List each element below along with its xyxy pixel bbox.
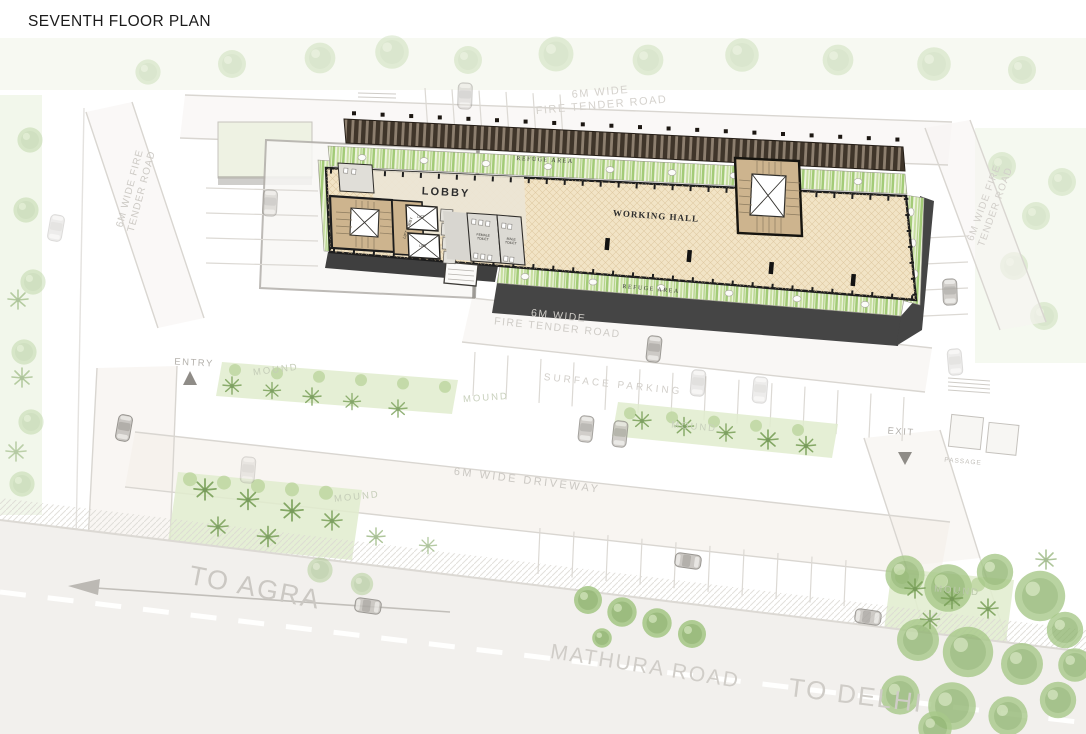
fixture	[479, 220, 483, 225]
car	[674, 552, 702, 569]
tree-cluster	[1001, 643, 1043, 685]
palm-tree	[675, 418, 694, 436]
car	[943, 279, 958, 305]
stall-line	[539, 359, 541, 403]
car	[752, 376, 768, 403]
pergola-column-dot	[724, 129, 728, 133]
faded-tree	[375, 35, 409, 69]
roadside-tree	[642, 608, 671, 637]
palm-tree	[344, 394, 361, 410]
palm-tree	[194, 479, 216, 500]
pergola-column-dot	[409, 114, 413, 118]
pergola-column-dot	[609, 124, 613, 128]
faded-tree	[351, 573, 373, 595]
fixture	[352, 169, 356, 174]
roadside-tree	[574, 586, 602, 614]
hedge	[439, 381, 451, 393]
planter-pot	[482, 161, 490, 167]
mound-strip	[216, 362, 458, 414]
faded-tree	[823, 45, 854, 76]
fixture	[488, 255, 492, 260]
car	[47, 214, 65, 242]
planter-pot	[544, 164, 552, 170]
hedge	[750, 420, 762, 432]
tree-cluster	[924, 564, 972, 612]
palm-tree	[303, 388, 321, 405]
pergola-column-dot	[895, 138, 899, 142]
palm-tree	[942, 589, 963, 609]
faded-tree	[988, 152, 1016, 180]
hedge	[355, 374, 367, 386]
faded-tree	[218, 50, 246, 78]
faded-tree	[917, 47, 951, 81]
tree-cluster	[988, 696, 1027, 734]
stall-line	[605, 366, 607, 410]
tree-cluster	[1040, 682, 1076, 718]
palm-tree	[238, 490, 259, 510]
service-room	[338, 163, 374, 193]
palm-tree	[905, 579, 925, 598]
planter-pot	[725, 290, 733, 296]
pergola-column-dot	[495, 118, 499, 122]
hedge	[397, 377, 409, 389]
faded-tree	[1008, 56, 1036, 84]
palm-tree	[758, 430, 778, 449]
hedge	[319, 486, 333, 500]
faded-tree	[725, 38, 759, 72]
car	[612, 420, 629, 447]
planter-pot	[793, 296, 801, 302]
pergola-column-dot	[838, 135, 842, 139]
car	[947, 348, 963, 375]
stall-line	[506, 355, 508, 399]
planter-pot	[854, 179, 862, 185]
palm-tree	[717, 424, 735, 441]
pergola-column-dot	[695, 128, 699, 132]
roadside-tree	[678, 620, 706, 648]
entry-arrow	[183, 371, 197, 385]
pergola-column-dot	[381, 113, 385, 117]
faded-tree	[454, 46, 482, 74]
planter-pot	[668, 170, 676, 176]
palm-tree	[1036, 550, 1056, 569]
planter-pot	[861, 301, 869, 307]
palm-tree	[978, 599, 998, 618]
hedge	[285, 482, 299, 496]
faded-tree	[9, 471, 34, 496]
pergola-column-dot	[667, 126, 671, 130]
note-smudge	[358, 93, 396, 94]
pergola-column-dot	[352, 111, 356, 115]
hedge	[666, 411, 678, 423]
hedge	[217, 476, 231, 490]
hedge	[624, 407, 636, 419]
stall-line	[572, 362, 574, 406]
palm-tree	[633, 412, 651, 429]
palm-tree	[921, 611, 940, 629]
fixture	[508, 224, 512, 229]
car	[354, 597, 382, 614]
planter-pot	[420, 158, 428, 164]
fixture	[481, 254, 485, 259]
palm-tree	[12, 368, 32, 387]
palm-tree	[389, 400, 407, 417]
roadside-tree	[607, 597, 636, 626]
note-smudge	[948, 390, 990, 393]
planter-pot	[657, 285, 665, 291]
faded-tree	[17, 127, 42, 152]
car	[458, 83, 473, 109]
faded-tree	[11, 339, 36, 364]
tree-cluster	[1047, 612, 1083, 648]
hedge	[313, 371, 325, 383]
stall-line	[776, 553, 778, 599]
planter-pot	[589, 279, 597, 285]
palm-tree	[258, 527, 279, 547]
palm-tree	[264, 383, 281, 399]
note-smudge	[948, 382, 990, 385]
fixture	[510, 257, 514, 262]
car	[854, 608, 882, 625]
note-smudge	[948, 378, 990, 381]
pergola-column-dot	[438, 115, 442, 119]
faded-tree	[18, 409, 43, 434]
fixture	[486, 221, 490, 226]
fixture	[502, 223, 506, 228]
pergola-column-dot	[581, 122, 585, 126]
faded-tree	[1022, 202, 1050, 230]
planter-pot	[358, 155, 366, 161]
palm-tree	[223, 377, 241, 394]
floor-plan-sheet: SEVENTH FLOOR PLAN 6M WIDE FIRE TENDER R…	[0, 0, 1086, 734]
pergola-column-dot	[752, 131, 756, 135]
tree-cluster	[880, 675, 919, 714]
palm-tree	[322, 511, 342, 530]
fixture	[504, 256, 508, 261]
pergola-column-dot	[638, 125, 642, 129]
pergola-column-dot	[867, 136, 871, 140]
utility-boxes	[948, 414, 1019, 455]
fixture	[474, 253, 478, 258]
building	[318, 111, 934, 346]
pergola-column-dot	[552, 121, 556, 125]
stall-line	[810, 557, 812, 603]
palm-tree	[797, 437, 816, 455]
car	[690, 369, 706, 396]
palm-tree	[8, 290, 28, 309]
hedge	[271, 367, 283, 379]
hedge	[708, 416, 720, 428]
faded-tree	[307, 557, 332, 582]
pergola-column-dot	[466, 117, 470, 121]
tree-cluster	[943, 627, 993, 677]
planter-pot	[521, 273, 529, 279]
palm-tree	[281, 500, 303, 521]
tree-cluster	[897, 619, 939, 661]
palm-tree	[420, 538, 437, 554]
planter-pot	[606, 167, 614, 173]
faded-tree	[135, 59, 160, 84]
faded-tree	[633, 45, 664, 76]
pergola-column-dot	[781, 132, 785, 136]
faded-tree	[1048, 168, 1076, 196]
palm-tree	[208, 517, 228, 536]
car	[578, 415, 595, 442]
hedge	[229, 364, 241, 376]
pergola-column-dot	[524, 120, 528, 124]
service-corridor	[443, 211, 471, 261]
note-smudge	[358, 97, 396, 98]
hedge	[183, 472, 197, 486]
faded-tree	[539, 37, 574, 72]
note-smudge	[948, 386, 990, 389]
utility-box-1	[948, 414, 983, 449]
stall-line	[869, 394, 871, 438]
tree-cluster	[977, 554, 1013, 590]
palm-tree	[367, 528, 385, 545]
stall-line	[473, 352, 475, 396]
car	[646, 335, 663, 362]
pergola-column-dot	[810, 133, 814, 137]
faded-tree	[13, 197, 38, 222]
site-boundary-left	[76, 108, 84, 542]
page-title: SEVENTH FLOOR PLAN	[28, 13, 211, 31]
hedge	[792, 424, 804, 436]
fixture	[344, 168, 348, 173]
fixture	[472, 219, 476, 224]
faded-tree	[305, 43, 336, 74]
roadside-tree	[592, 628, 612, 648]
car	[262, 190, 277, 217]
car	[240, 456, 256, 483]
palm-tree	[6, 442, 26, 461]
faded-tree	[20, 269, 45, 294]
utility-box-2	[986, 422, 1019, 455]
site-plan-drawing	[0, 0, 1086, 734]
